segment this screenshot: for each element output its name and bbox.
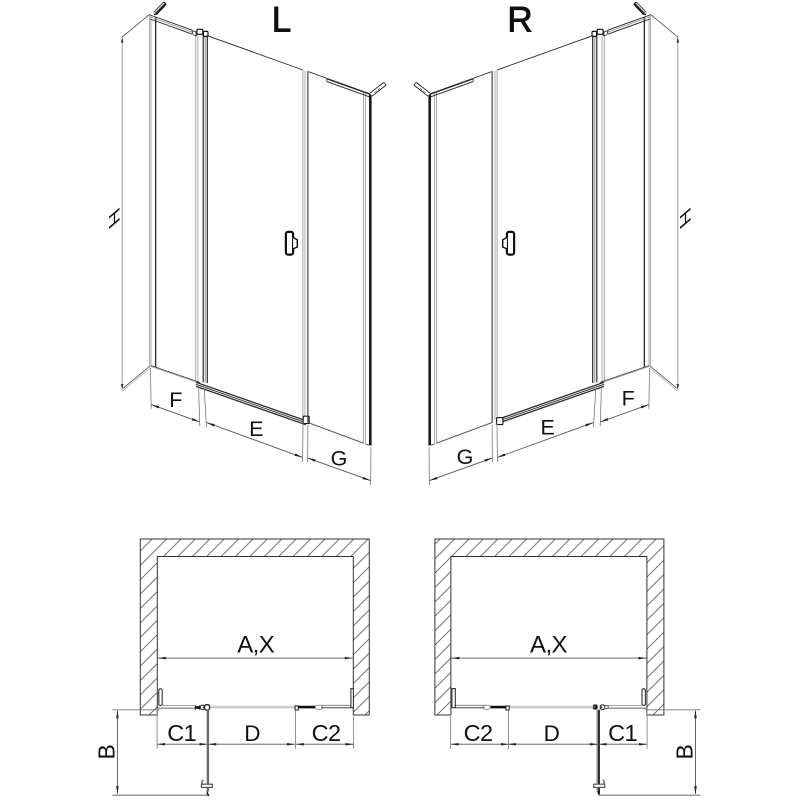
svg-text:C2: C2	[464, 720, 493, 746]
svg-text:F: F	[622, 387, 635, 411]
svg-text:E: E	[249, 417, 263, 441]
svg-text:G: G	[331, 446, 348, 470]
svg-text:G: G	[457, 445, 474, 469]
svg-text:D: D	[244, 721, 260, 746]
svg-text:F: F	[169, 388, 182, 412]
svg-text:A,X: A,X	[530, 631, 567, 658]
svg-text:D: D	[544, 721, 560, 746]
svg-text:A,X: A,X	[237, 631, 274, 658]
svg-text:R: R	[507, 1, 532, 40]
svg-text:B: B	[671, 744, 697, 759]
svg-text:C1: C1	[167, 720, 196, 746]
svg-text:E: E	[541, 416, 555, 440]
svg-text:C1: C1	[608, 720, 637, 746]
svg-text:B: B	[93, 744, 119, 759]
svg-text:C2: C2	[312, 720, 341, 746]
svg-text:L: L	[272, 1, 291, 40]
